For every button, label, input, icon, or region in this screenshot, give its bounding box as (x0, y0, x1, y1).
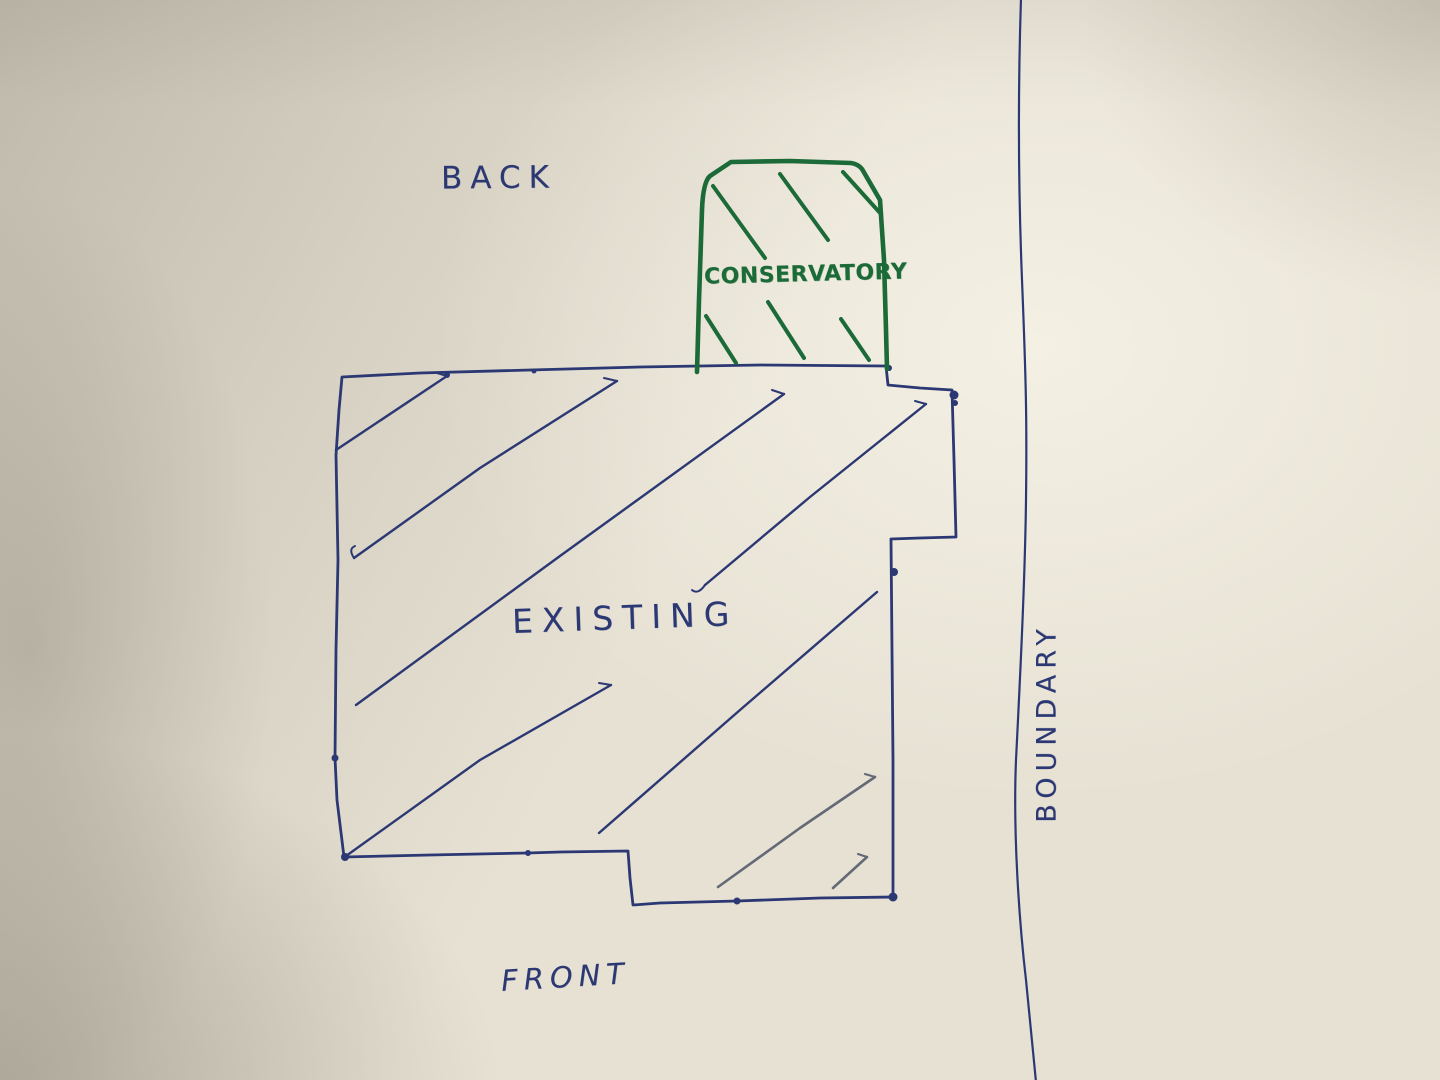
back-label: BACK (441, 159, 557, 196)
paper-sheet: BACK CONSERVATORY EXISTING FRONT BOUNDAR… (0, 0, 1440, 1080)
sketch-svg (0, 0, 1440, 1080)
existing-label: EXISTING (511, 594, 739, 641)
conservatory-label: CONSERVATORY (704, 259, 908, 289)
boundary-label: BOUNDARY (1032, 623, 1063, 823)
boundary-line (1015, 0, 1036, 1080)
pencil-hatch-lines (718, 774, 875, 888)
